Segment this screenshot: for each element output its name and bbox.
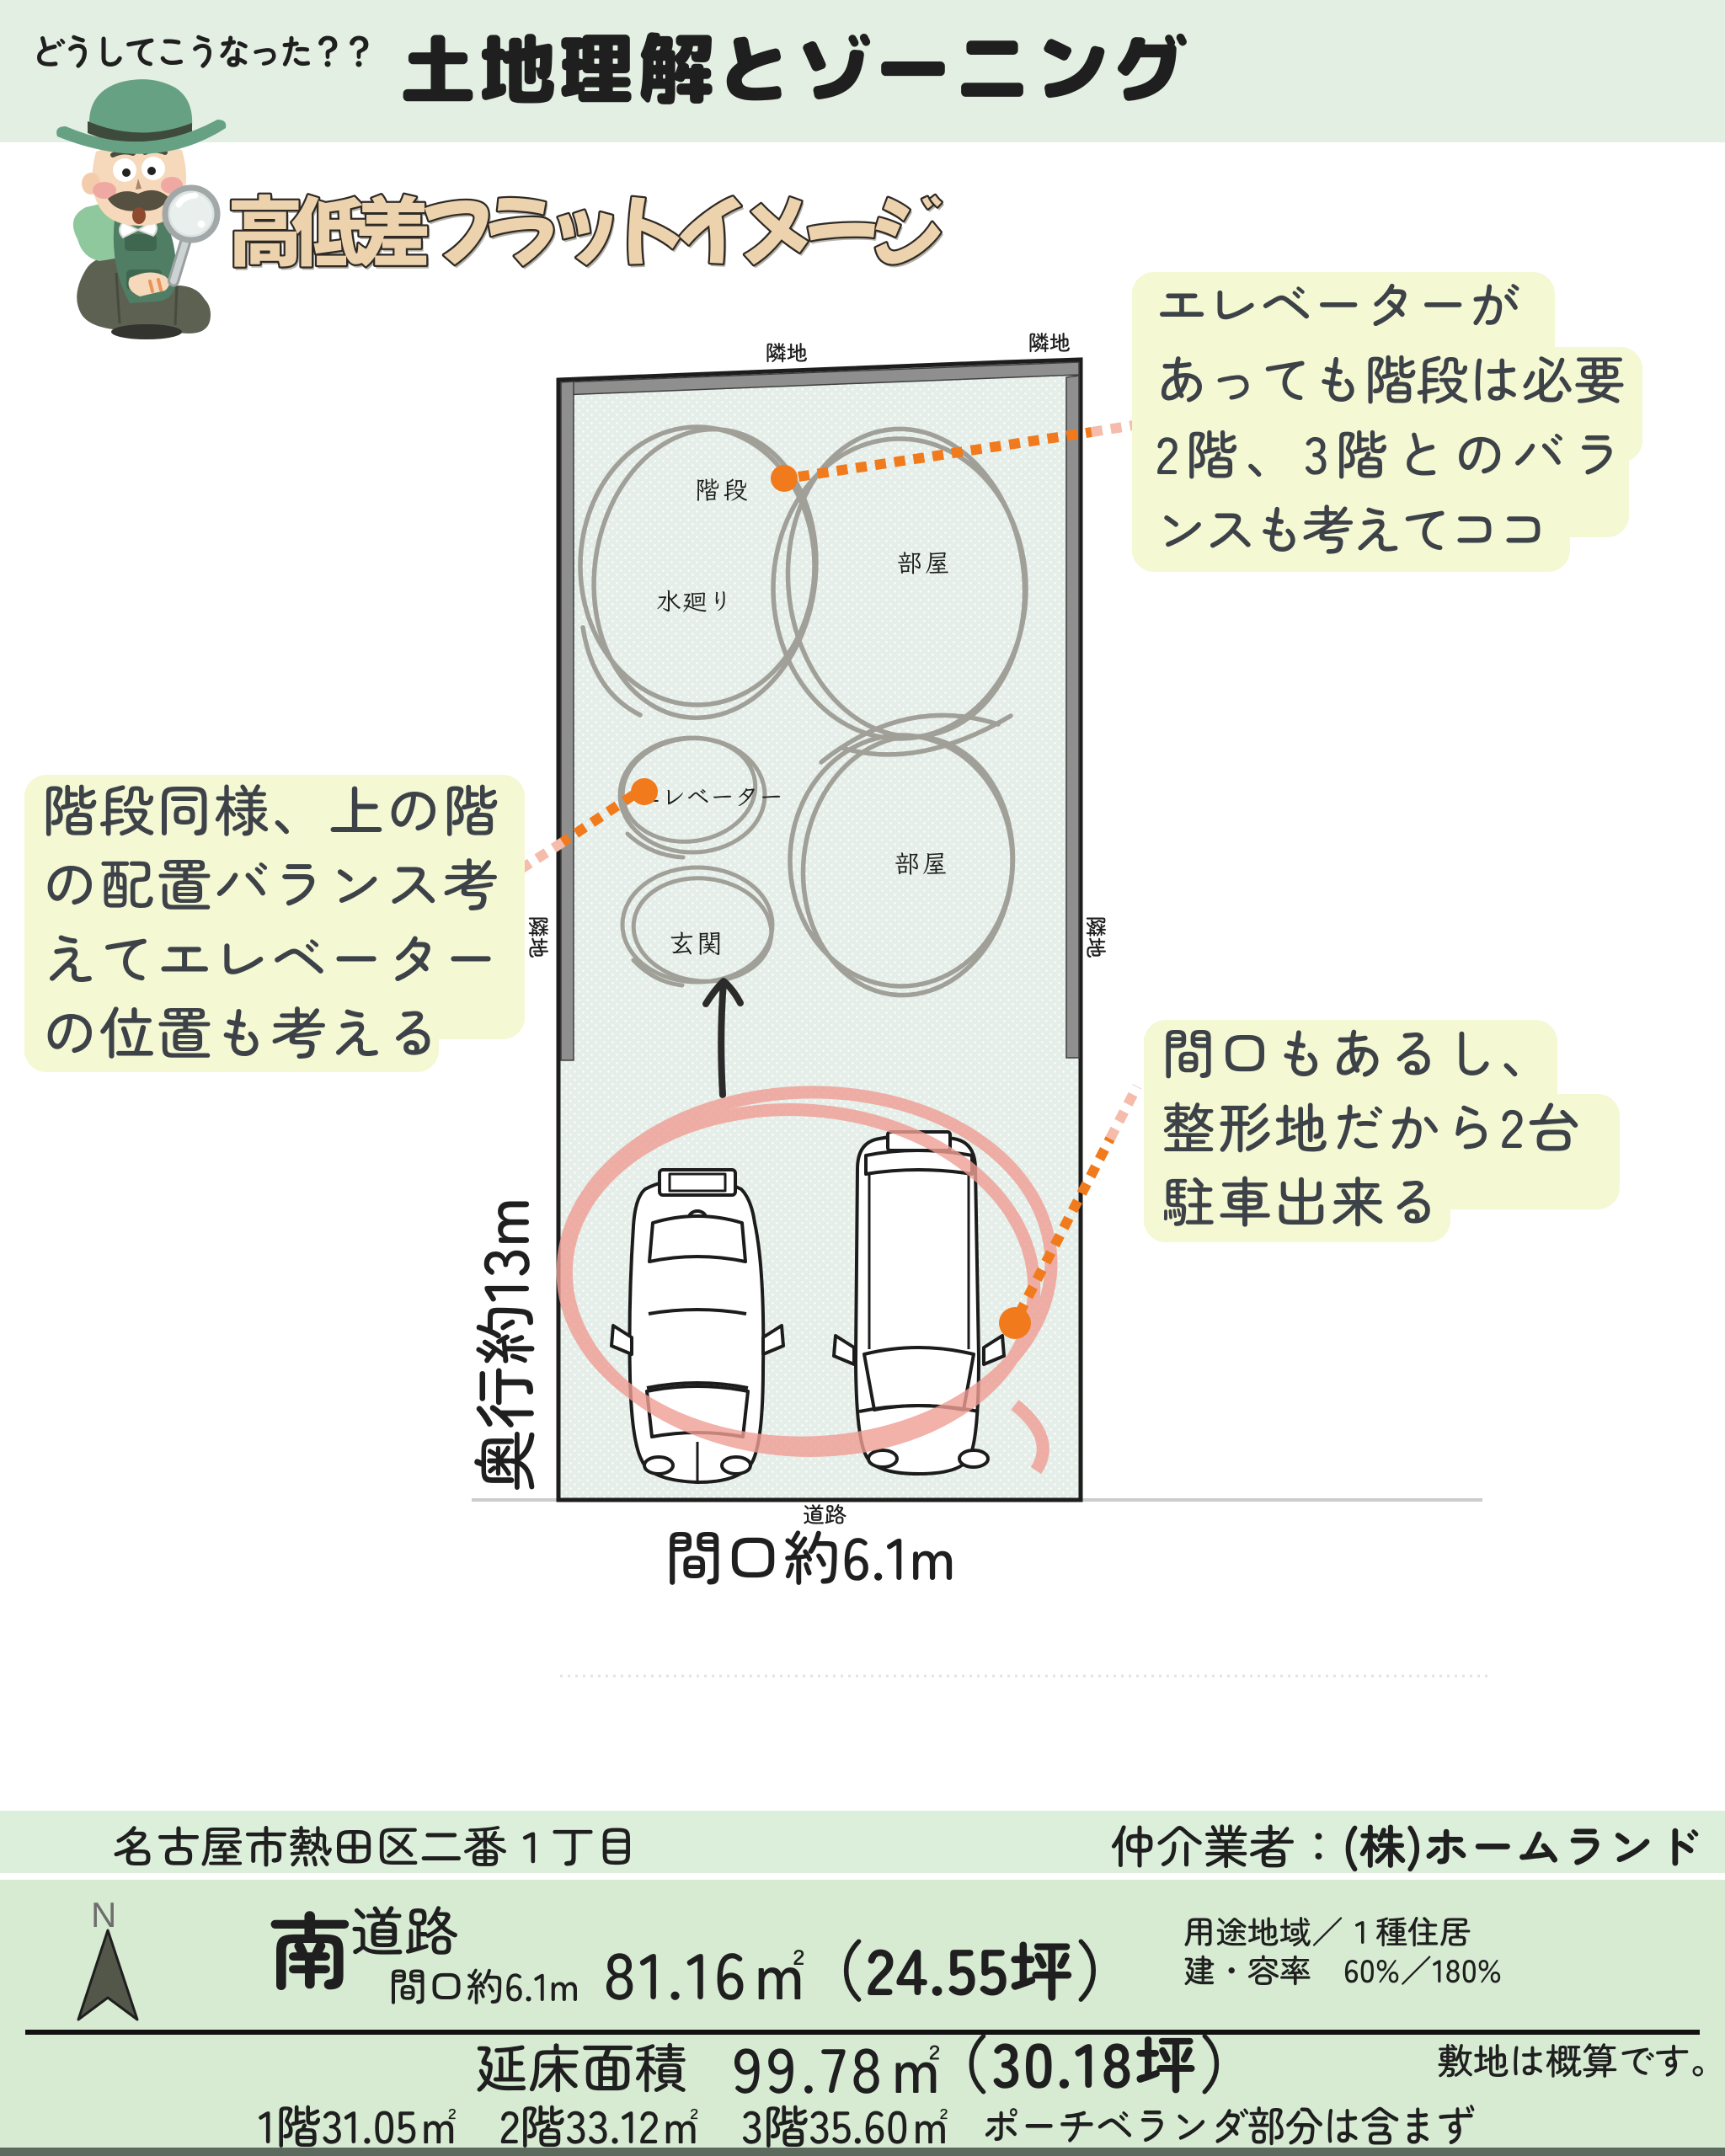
svg-text:間口約6.1m: 間口約6.1m xyxy=(665,1513,956,1598)
svg-text:部屋: 部屋 xyxy=(895,843,950,880)
svg-text:水廻り: 水廻り xyxy=(656,582,734,617)
svg-text:隣地: 隣地 xyxy=(766,337,808,367)
svg-text:隣地: 隣地 xyxy=(1081,916,1112,958)
svg-text:エレベーター: エレベーター xyxy=(637,777,783,813)
svg-text:奥行約13m: 奥行約13m xyxy=(456,1198,547,1492)
svg-text:階段: 階段 xyxy=(695,469,750,506)
svg-text:隣地: 隣地 xyxy=(524,916,554,958)
svg-text:N: N xyxy=(91,1895,116,1935)
svg-text:部屋: 部屋 xyxy=(897,542,953,579)
svg-text:隣地: 隣地 xyxy=(1028,327,1071,357)
svg-text:玄関: 玄関 xyxy=(669,922,724,960)
